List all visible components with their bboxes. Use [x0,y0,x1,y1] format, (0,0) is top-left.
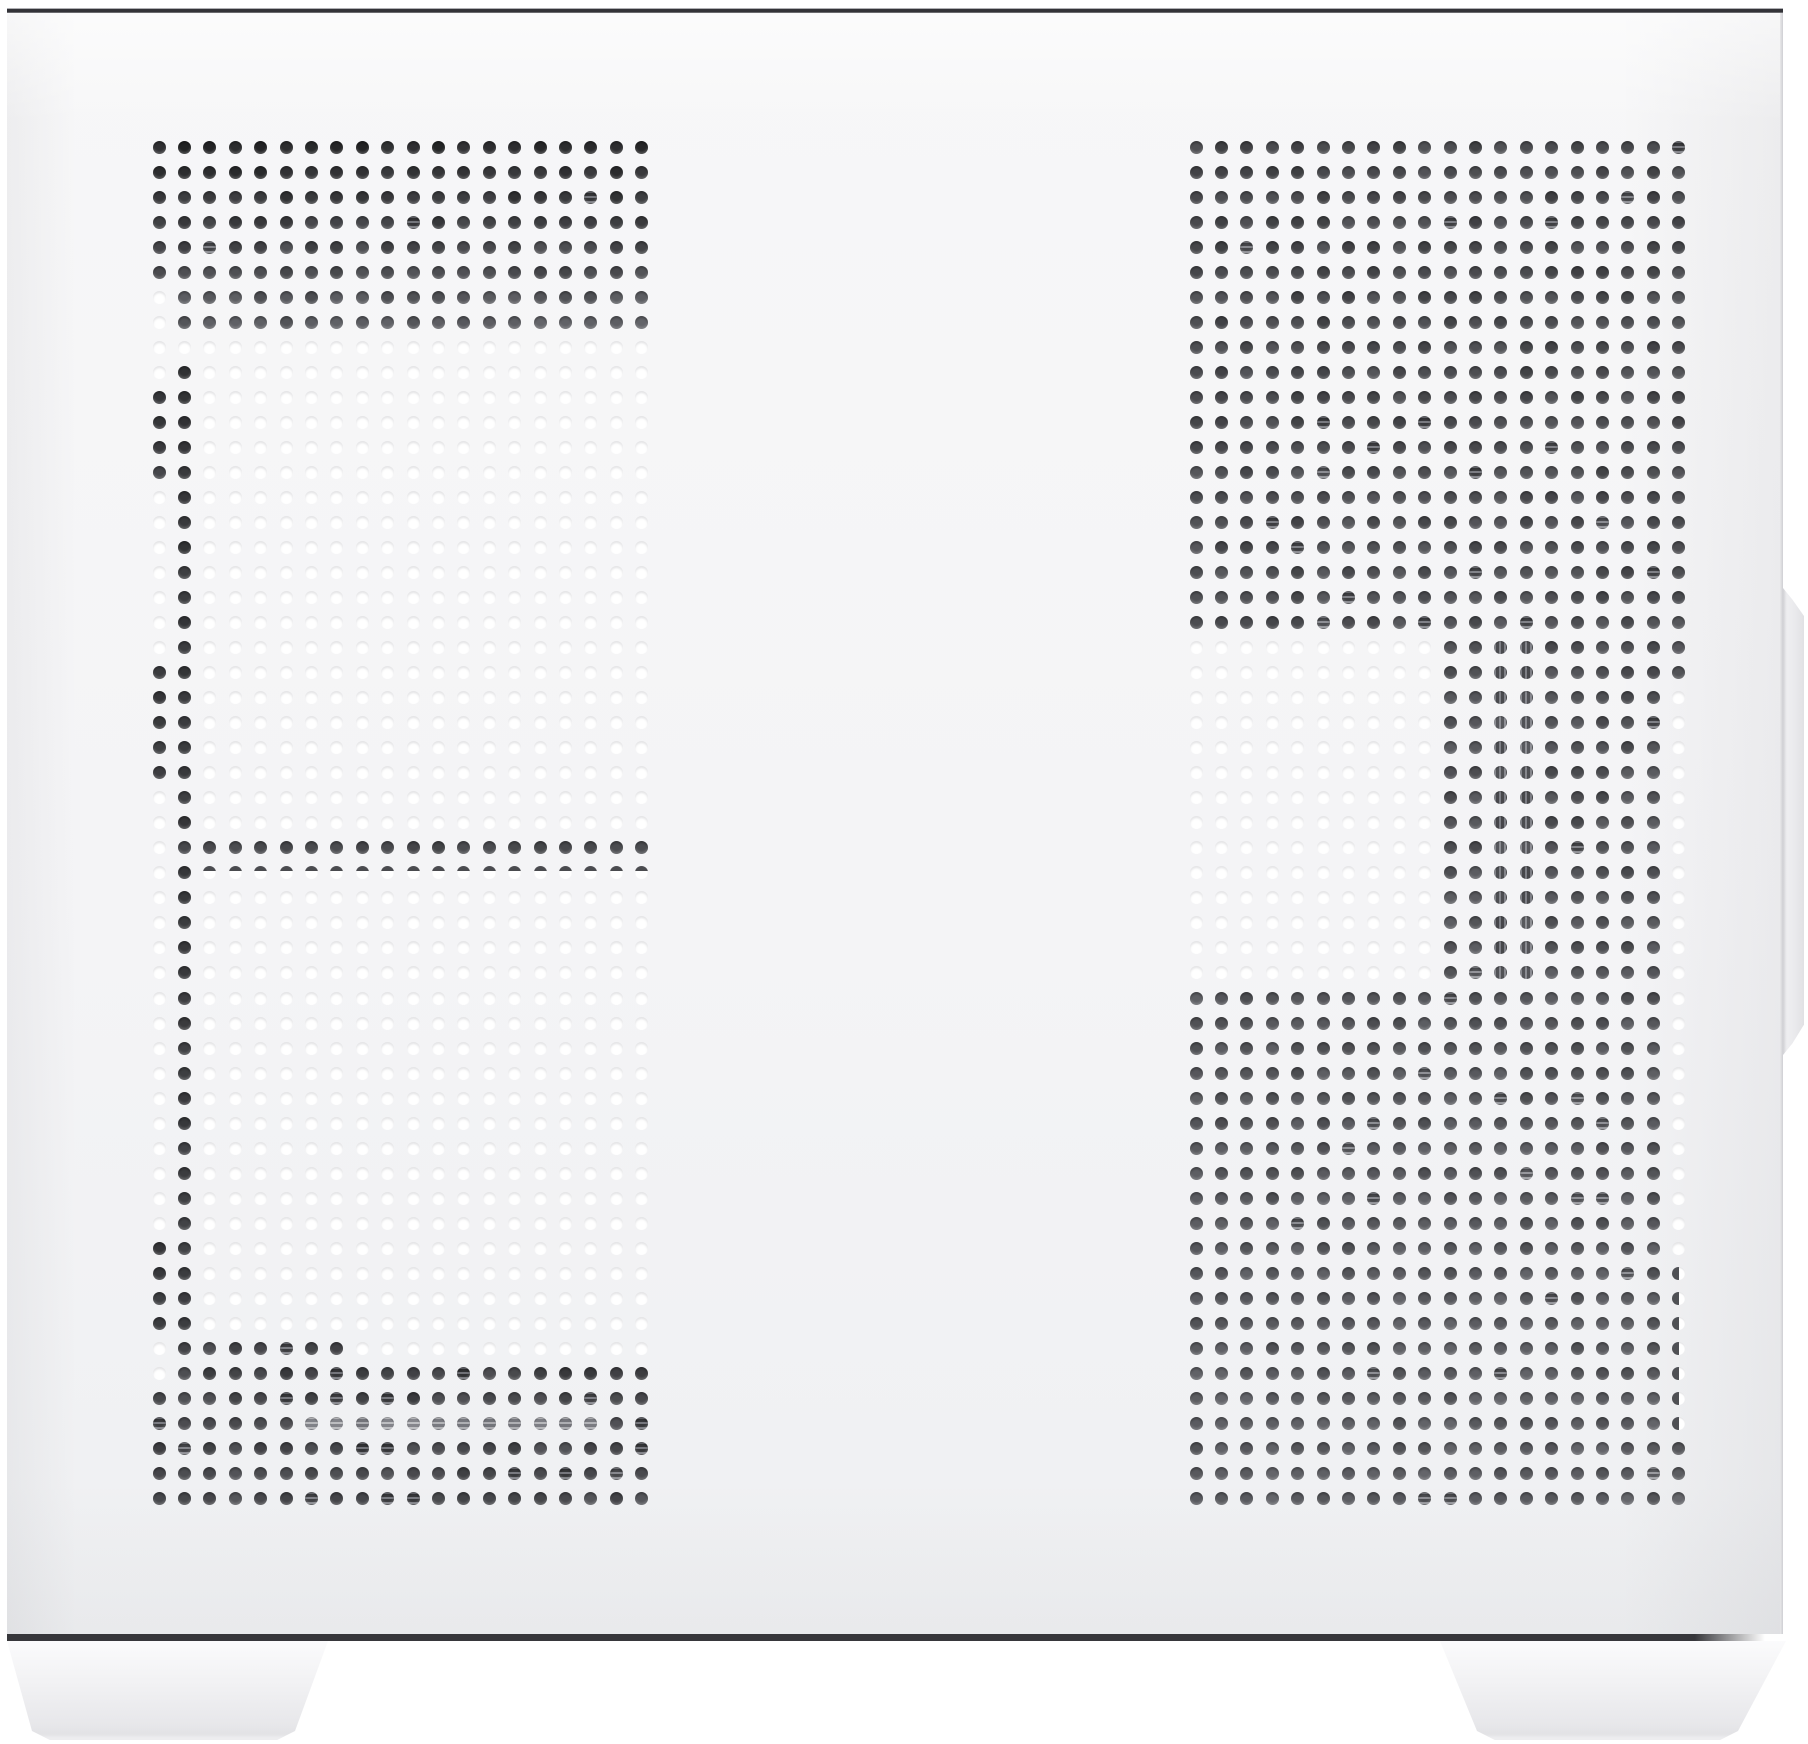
vent-hole [1469,941,1482,954]
vent-hole [1494,391,1507,404]
vent-hole [1545,1142,1558,1155]
vent-hole [1291,1292,1304,1305]
vent-hole [1393,891,1406,904]
vent-hole [1672,266,1685,279]
vent-hole [1190,791,1203,804]
vent-hole [1266,1342,1279,1355]
vent-hole [1291,1467,1304,1480]
vent-hole [1317,391,1330,404]
vent-hole [1571,1267,1584,1280]
vent-hole [1647,441,1660,454]
vent-hole [1342,591,1355,604]
vent-hole [1266,1467,1279,1480]
vent-hole [1317,816,1330,829]
vent-hole [1444,1092,1457,1105]
vent-hole [1672,791,1685,804]
vent-hole [1621,766,1634,779]
vent-hole [1520,441,1533,454]
vent-hole [1621,1017,1634,1030]
vent-hole [1291,291,1304,304]
vent-hole [1469,641,1482,654]
vent-hole [1190,191,1203,204]
vent-hole [1672,541,1685,554]
vent-hole [1291,1392,1304,1405]
vent-hole [1418,516,1431,529]
vent-hole [1444,616,1457,629]
vent-hole [1266,1192,1279,1205]
vent-hole [1215,291,1228,304]
vent-hole [1596,166,1609,179]
vent-hole [1393,1092,1406,1105]
vent-hole [1672,716,1685,729]
vent-hole [1520,666,1533,679]
vent-hole [1672,1342,1685,1355]
vent-hole [1367,541,1380,554]
vent-hole [1291,141,1304,154]
vent-hole [1520,541,1533,554]
vent-hole [1317,591,1330,604]
vent-hole [1393,1042,1406,1055]
vent-hole [1291,941,1304,954]
vent-hole [1647,966,1660,979]
vent-hole [1418,1167,1431,1180]
vent-hole [1596,466,1609,479]
vent-hole [1596,1017,1609,1030]
vent-hole [1444,566,1457,579]
vent-hole [1469,766,1482,779]
vent-hole [1393,1117,1406,1130]
vent-hole [1418,316,1431,329]
vent-hole [1672,1042,1685,1055]
vent-hole [1545,241,1558,254]
vent-hole [1520,316,1533,329]
vent-hole [1291,1267,1304,1280]
vent-hole [1317,1442,1330,1455]
vent-hole [1190,316,1203,329]
vent-hole [1545,966,1558,979]
vent-hole [1469,666,1482,679]
vent-hole [1520,791,1533,804]
vent-hole [1240,1292,1253,1305]
vent-hole [1545,916,1558,929]
vent-hole [1571,741,1584,754]
vent-hole [1317,691,1330,704]
vent-hole [1647,591,1660,604]
vent-hole [1317,216,1330,229]
vent-hole [1647,566,1660,579]
vent-hole [1317,992,1330,1005]
vent-hole [1418,541,1431,554]
vent-hole [1444,241,1457,254]
vent-hole [1520,216,1533,229]
vent-hole [1215,891,1228,904]
vent-hole [1393,591,1406,604]
vent-hole [1317,541,1330,554]
vent-hole [1266,1042,1279,1055]
vent-hole [1520,866,1533,879]
vent-hole [1545,1242,1558,1255]
vent-hole [1266,716,1279,729]
vent-hole [1520,741,1533,754]
vent-hole [1621,616,1634,629]
vent-hole [1571,992,1584,1005]
vent-hole [1444,1417,1457,1430]
vent-hole [1393,716,1406,729]
vent-hole [1215,966,1228,979]
vent-hole [1596,1442,1609,1455]
vent-hole [1418,341,1431,354]
vent-hole [1317,366,1330,379]
vent-hole [1367,266,1380,279]
vent-hole [1520,1367,1533,1380]
vent-hole [1266,941,1279,954]
vent-hole [1240,1417,1253,1430]
vent-hole [1571,1417,1584,1430]
vent-hole [1545,466,1558,479]
vent-hole [1342,1042,1355,1055]
vent-hole [1571,241,1584,254]
vent-hole [1266,141,1279,154]
vent-hole [1621,1267,1634,1280]
vent-hole [1190,166,1203,179]
vent-hole [1215,266,1228,279]
vent-hole [1418,1092,1431,1105]
vent-hole [1393,316,1406,329]
vent-hole [1240,1317,1253,1330]
vent-hole [1418,416,1431,429]
vent-hole [1367,616,1380,629]
vent-hole [1215,1267,1228,1280]
vent-hole [1393,1317,1406,1330]
vent-hole [1215,191,1228,204]
vent-hole [1520,191,1533,204]
vent-hole [1418,1217,1431,1230]
vent-hole [1444,191,1457,204]
vent-hole [1266,1217,1279,1230]
vent-hole [1494,1442,1507,1455]
vent-hole [1291,1367,1304,1380]
vent-hole [1672,866,1685,879]
vent-hole [1266,516,1279,529]
vent-hole [1596,1092,1609,1105]
vent-hole [1444,291,1457,304]
vent-hole [1520,766,1533,779]
vent-hole [1317,1392,1330,1405]
vent-hole [1596,1317,1609,1330]
vent-hole [1672,666,1685,679]
vent-hole [1215,466,1228,479]
vent-hole [1190,941,1203,954]
vent-hole [1393,391,1406,404]
vent-hole [1291,616,1304,629]
vent-hole [1317,1417,1330,1430]
vent-hole [1317,1342,1330,1355]
vent-hole [1469,1092,1482,1105]
vent-hole [1190,766,1203,779]
vent-hole [1571,866,1584,879]
vent-hole [1393,191,1406,204]
vent-hole [1190,1192,1203,1205]
vent-hole [1291,641,1304,654]
vent-hole [1494,841,1507,854]
vent-hole [1342,916,1355,929]
vent-hole [1317,1217,1330,1230]
vent-hole [1190,966,1203,979]
vent-hole [1647,1167,1660,1180]
vent-hole [1545,741,1558,754]
vent-hole [1571,691,1584,704]
vent-hole [1317,641,1330,654]
vent-hole [1190,216,1203,229]
vent-hole [1621,166,1634,179]
vent-hole [1494,766,1507,779]
vent-hole [1571,266,1584,279]
vent-hole [1596,1192,1609,1205]
vent-hole [1367,566,1380,579]
vent-hole [1393,766,1406,779]
vent-hole [1317,1092,1330,1105]
vent-hole [1291,166,1304,179]
vent-hole [1190,1367,1203,1380]
vent-hole [1672,841,1685,854]
vent-hole [1596,1467,1609,1480]
vent-hole [1494,1167,1507,1180]
vent-hole [1494,1142,1507,1155]
vent-hole [1317,891,1330,904]
vent-hole [1240,216,1253,229]
vent-hole [1215,566,1228,579]
vent-hole [1621,791,1634,804]
vent-hole [1342,316,1355,329]
vent-hole [1444,1192,1457,1205]
vent-hole [1342,866,1355,879]
vent-hole [1342,1392,1355,1405]
vent-hole [1291,666,1304,679]
vent-hole [1367,1417,1380,1430]
vent-hole [1317,916,1330,929]
vent-hole [1672,691,1685,704]
vent-hole [1393,941,1406,954]
vent-hole [1367,416,1380,429]
vent-hole [1596,416,1609,429]
vent-hole [1393,241,1406,254]
vent-hole [1596,1292,1609,1305]
vent-hole [1240,966,1253,979]
vent-hole [1444,441,1457,454]
vent-hole [1545,1067,1558,1080]
vent-hole [1672,1442,1685,1455]
vent-hole [1215,141,1228,154]
vent-hole [1596,1042,1609,1055]
vent-hole [1621,591,1634,604]
vent-hole [1393,866,1406,879]
vent-hole [1520,916,1533,929]
vent-hole [1240,1042,1253,1055]
vent-hole [1240,391,1253,404]
vent-hole [1520,691,1533,704]
vent-hole [1317,1067,1330,1080]
vent-hole [1240,566,1253,579]
vent-hole [1393,491,1406,504]
vent-hole [1317,941,1330,954]
vent-hole [1545,291,1558,304]
vent-hole [1266,1267,1279,1280]
vent-hole [1393,1292,1406,1305]
vent-hole [1494,291,1507,304]
vent-hole [1571,916,1584,929]
vent-hole [1215,1067,1228,1080]
vent-hole [1469,1342,1482,1355]
vent-hole [1291,716,1304,729]
vent-hole [1367,1117,1380,1130]
vent-hole [1647,1367,1660,1380]
vent-hole [1291,691,1304,704]
vent-hole [1190,291,1203,304]
vent-hole [1469,1392,1482,1405]
vent-hole [1393,966,1406,979]
vent-hole [1621,216,1634,229]
vent-hole [1266,216,1279,229]
vent-hole [1317,716,1330,729]
vent-hole [1215,1217,1228,1230]
vent-hole [1317,1292,1330,1305]
vent-hole [1291,1167,1304,1180]
vent-hole [1393,566,1406,579]
vent-hole [1647,1042,1660,1055]
vent-hole [1418,191,1431,204]
vent-hole [1393,291,1406,304]
vent-hole [1215,1392,1228,1405]
vent-hole [1418,666,1431,679]
vent-hole [1571,666,1584,679]
vent-hole [1647,1342,1660,1355]
vent-hole [1520,566,1533,579]
vent-hole [1190,891,1203,904]
vent-hole [1215,1442,1228,1455]
vent-hole [1291,891,1304,904]
vent-hole [1621,816,1634,829]
vent-hole [1494,1417,1507,1430]
vent-hole [1240,666,1253,679]
vent-hole [1621,1417,1634,1430]
vent-hole [1291,1067,1304,1080]
vent-hole [1393,341,1406,354]
vent-hole [1520,166,1533,179]
vent-hole [1596,716,1609,729]
vent-hole [1367,391,1380,404]
vent-hole [1672,1167,1685,1180]
vent-hole [1215,1092,1228,1105]
vent-hole [1596,141,1609,154]
vent-hole [1240,1192,1253,1205]
vent-hole [1342,992,1355,1005]
vent-hole [1215,516,1228,529]
vent-hole [1342,1492,1355,1505]
vent-hole [1647,1142,1660,1155]
vent-hole [1240,266,1253,279]
vent-hole [1317,491,1330,504]
vent-hole [1647,291,1660,304]
vent-hole [1291,1192,1304,1205]
vent-hole [1291,366,1304,379]
vent-hole [1291,491,1304,504]
vent-hole [1647,1267,1660,1280]
vent-hole [1647,516,1660,529]
vent-hole [1571,891,1584,904]
vent-hole [1266,1142,1279,1155]
vent-hole [1367,666,1380,679]
vent-hole [1291,416,1304,429]
vent-hole [1571,816,1584,829]
vent-hole [1545,516,1558,529]
vent-hole [1418,1117,1431,1130]
vent-hole [1444,1492,1457,1505]
vent-hole [1342,841,1355,854]
vent-hole [1520,1442,1533,1455]
vent-hole [1520,1167,1533,1180]
vent-hole [1672,1467,1685,1480]
vent-hole [1545,1442,1558,1455]
vent-hole [1367,441,1380,454]
vent-hole [1342,166,1355,179]
vent-hole [1672,166,1685,179]
vent-hole [1621,241,1634,254]
vent-hole [1418,791,1431,804]
vent-hole [1367,716,1380,729]
vent-hole [1596,591,1609,604]
vent-hole [1342,141,1355,154]
vent-hole [1342,791,1355,804]
vent-hole [1367,966,1380,979]
vent-hole [1469,491,1482,504]
vent-hole [1672,491,1685,504]
vent-hole [1647,691,1660,704]
vent-hole [1596,1242,1609,1255]
vent-hole [1596,941,1609,954]
vent-hole [1342,566,1355,579]
vent-hole [1444,866,1457,879]
vent-hole [1545,341,1558,354]
vent-hole [1494,441,1507,454]
vent-hole [1240,1017,1253,1030]
vent-hole [1393,1217,1406,1230]
vent-hole [1520,1292,1533,1305]
vent-hole [1647,916,1660,929]
vent-hole [1367,1092,1380,1105]
vent-hole [1545,791,1558,804]
vent-hole [1469,416,1482,429]
vent-hole [1418,816,1431,829]
vent-hole [1291,1042,1304,1055]
vent-hole [1672,1217,1685,1230]
vent-hole [1190,266,1203,279]
vent-hole [1469,291,1482,304]
vent-hole [1520,466,1533,479]
vent-hole [1215,1367,1228,1380]
vent-hole [1215,1492,1228,1505]
vent-hole [1621,1067,1634,1080]
vent-hole [1266,591,1279,604]
vent-hole [1393,1017,1406,1030]
vent-hole [1317,191,1330,204]
vent-hole [1418,1017,1431,1030]
vent-hole [1545,641,1558,654]
vent-hole [1545,666,1558,679]
vent-hole [1444,992,1457,1005]
vent-hole [1545,266,1558,279]
vent-hole [1190,1267,1203,1280]
vent-hole [1520,716,1533,729]
